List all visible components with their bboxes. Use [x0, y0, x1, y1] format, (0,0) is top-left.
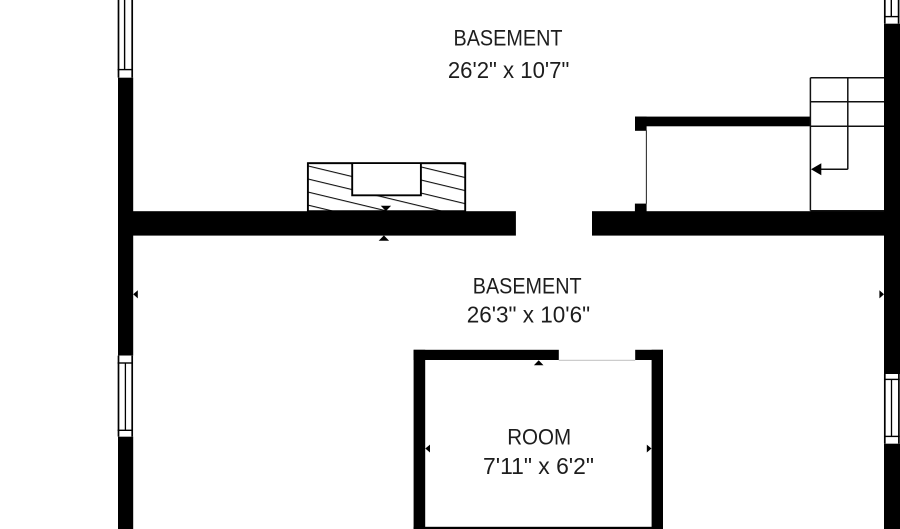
svg-text:ROOM: ROOM	[507, 424, 571, 449]
svg-text:BASEMENT: BASEMENT	[454, 25, 563, 50]
svg-text:26'2" x 10'7": 26'2" x 10'7"	[448, 57, 570, 83]
svg-text:BASEMENT: BASEMENT	[473, 274, 582, 299]
svg-text:26'3" x 10'6": 26'3" x 10'6"	[467, 302, 590, 328]
svg-text:7'11" x 6'2": 7'11" x 6'2"	[483, 453, 594, 479]
